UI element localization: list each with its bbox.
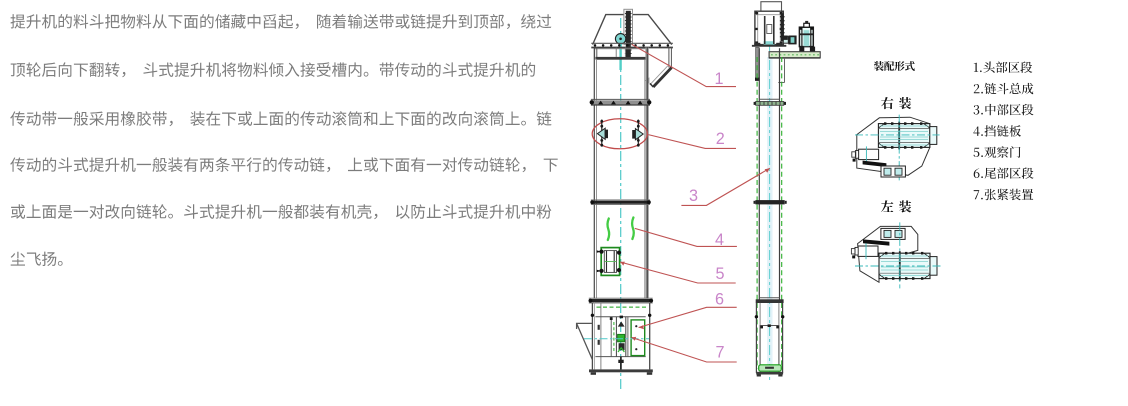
svg-text:7: 7 <box>715 344 724 362</box>
svg-text:1: 1 <box>714 70 723 88</box>
svg-text:5: 5 <box>715 265 724 283</box>
svg-text:6: 6 <box>715 290 724 308</box>
svg-text:3: 3 <box>689 187 698 205</box>
svg-text:2: 2 <box>716 130 725 148</box>
svg-text:4: 4 <box>715 231 724 249</box>
